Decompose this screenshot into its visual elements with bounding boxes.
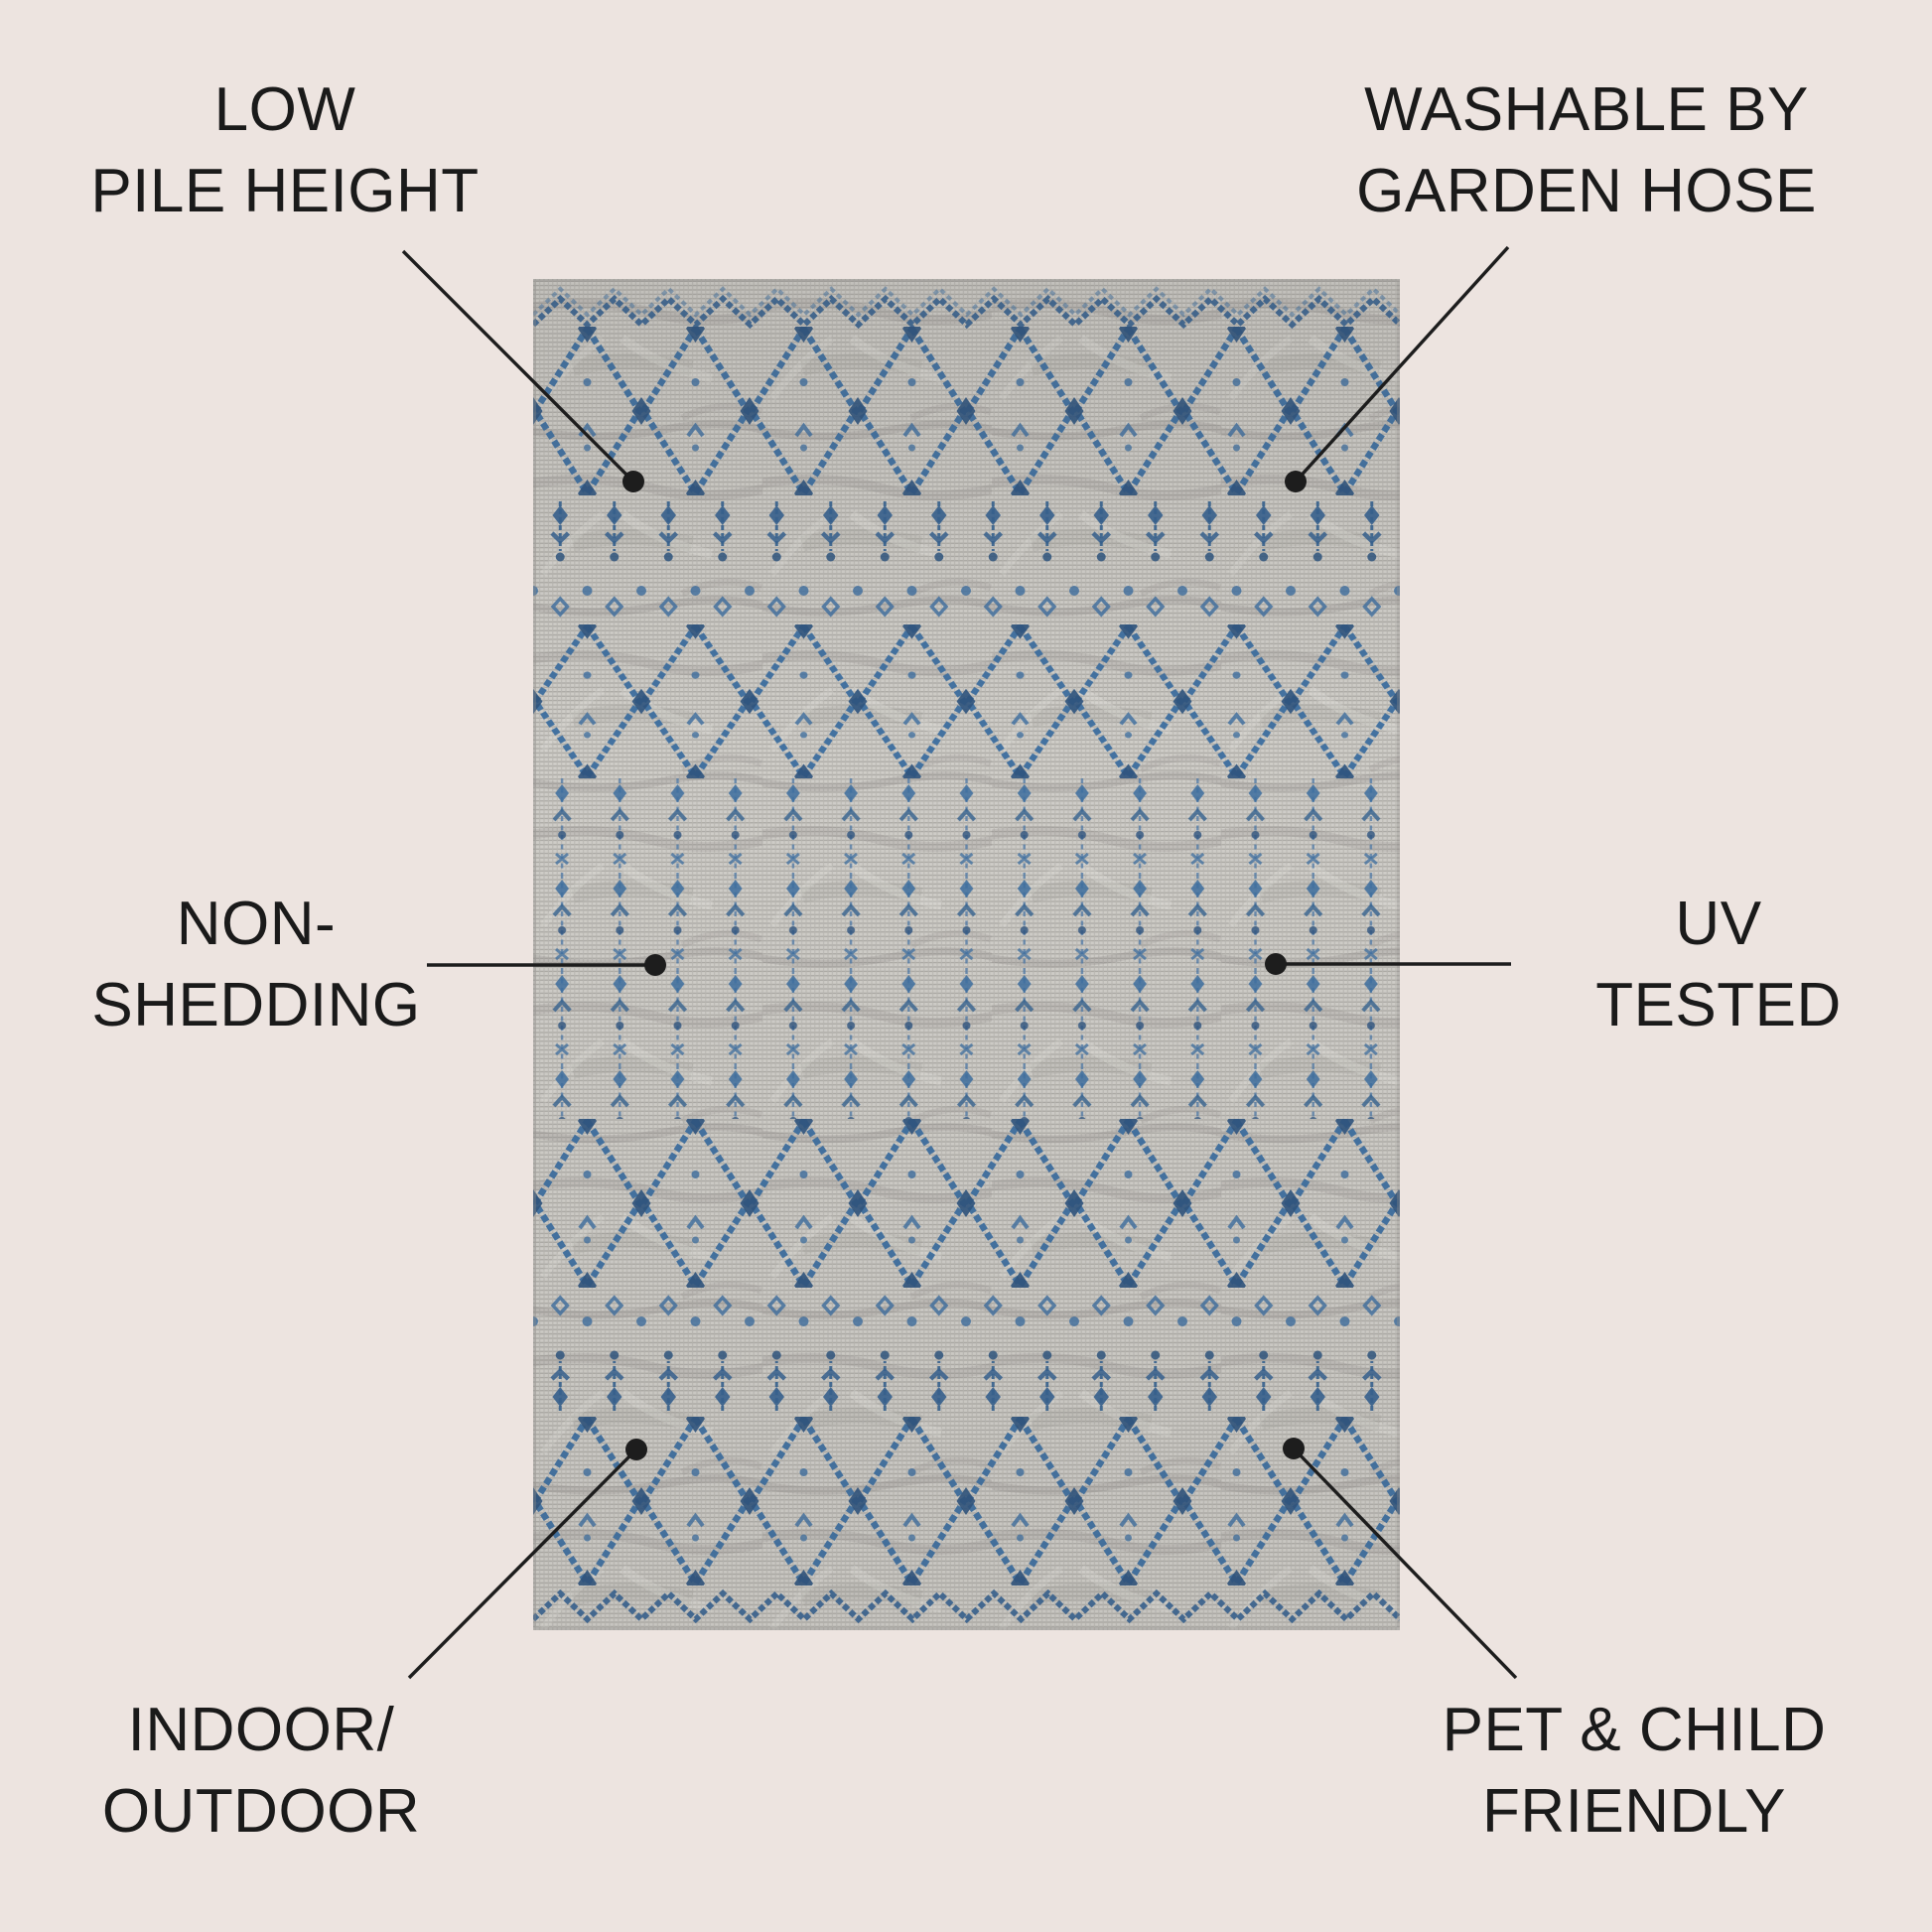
callout-label-line: WASHABLE BY — [1309, 69, 1864, 151]
callout-label-line: LOW — [7, 69, 563, 151]
rug-feature-infographic: LOW PILE HEIGHT WASHABLE BY GARDEN HOSE … — [0, 0, 1932, 1932]
callout-label-line: NON- — [8, 884, 504, 965]
callout-label-low-pile-height: LOW PILE HEIGHT — [7, 69, 563, 232]
callout-label-pet-child-friendly: PET & CHILD FRIENDLY — [1386, 1690, 1882, 1853]
callout-label-non-shedding: NON- SHEDDING — [8, 884, 504, 1046]
callout-label-line: PET & CHILD — [1386, 1690, 1882, 1771]
callout-label-line: GARDEN HOSE — [1309, 151, 1864, 232]
callout-label-line: UV — [1470, 884, 1932, 965]
rug-image — [533, 279, 1400, 1630]
callout-label-washable-by-garden-hose: WASHABLE BY GARDEN HOSE — [1309, 69, 1864, 232]
rug-shading — [533, 279, 1400, 1630]
callout-label-line: PILE HEIGHT — [7, 151, 563, 232]
callout-label-line: FRIENDLY — [1386, 1771, 1882, 1853]
callout-label-line: INDOOR/ — [13, 1690, 509, 1771]
callout-label-line: OUTDOOR — [13, 1771, 509, 1853]
callout-label-line: TESTED — [1470, 965, 1932, 1046]
callout-label-indoor-outdoor: INDOOR/ OUTDOOR — [13, 1690, 509, 1853]
callout-label-uv-tested: UV TESTED — [1470, 884, 1932, 1046]
callout-label-line: SHEDDING — [8, 965, 504, 1046]
